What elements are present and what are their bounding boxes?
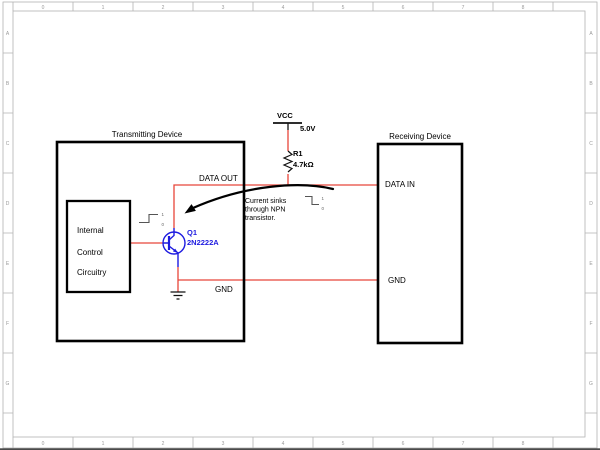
col-label: 1 <box>102 441 105 447</box>
col-label: 1 <box>102 5 105 11</box>
falling-edge-high-label: 1 <box>322 196 325 201</box>
col-label: 6 <box>402 5 405 11</box>
data-in-pin-label: DATA IN <box>385 180 415 189</box>
row-label: C <box>6 141 10 147</box>
col-label: 8 <box>522 5 525 11</box>
row-label: G <box>589 381 593 387</box>
schematic-canvas: 0 1 2 3 4 5 6 7 8 0 1 2 3 4 5 6 7 8 A B … <box>0 0 600 450</box>
col-label: 7 <box>462 5 465 11</box>
transistor-part-label: 2N2222A <box>187 238 219 247</box>
internal-control-line3: Circuitry <box>77 268 106 277</box>
rising-edge-high-label: 1 <box>162 212 165 217</box>
row-label: D <box>6 201 10 207</box>
row-label: B <box>6 81 10 87</box>
note-line3: transistor. <box>245 215 275 222</box>
row-label: F <box>589 321 592 327</box>
col-label: 8 <box>522 441 525 447</box>
resistor-value-label: 4.7kΩ <box>293 160 314 169</box>
sheet-left-ticks <box>3 53 13 413</box>
col-label: 4 <box>282 5 285 11</box>
col-label: 0 <box>42 441 45 447</box>
row-label: F <box>6 321 9 327</box>
schematic-page: 0 1 2 3 4 5 6 7 8 0 1 2 3 4 5 6 7 8 A B … <box>0 0 600 450</box>
vcc-voltage-label: 5.0V <box>300 124 315 133</box>
rising-edge-icon <box>139 215 158 223</box>
falling-edge-icon <box>305 197 319 205</box>
transistor-ref-label: Q1 <box>187 228 197 237</box>
sheet-outer-border <box>3 2 597 448</box>
sheet-inner-border <box>13 11 585 437</box>
note-line2: through NPN <box>245 207 285 214</box>
row-label: G <box>6 381 10 387</box>
col-label: 2 <box>162 441 165 447</box>
col-label: 0 <box>42 5 45 11</box>
row-label: B <box>589 81 593 87</box>
row-label: A <box>6 31 10 37</box>
col-label: 5 <box>342 5 345 11</box>
rx-gnd-pin-label: GND <box>388 276 406 285</box>
data-out-net-label: DATA OUT <box>199 174 238 183</box>
transistor-leads <box>163 228 178 267</box>
receiving-device-box <box>378 144 462 343</box>
col-label: 4 <box>282 441 285 447</box>
internal-control-line1: Internal <box>77 226 104 235</box>
sheet-right-ticks <box>585 53 597 413</box>
vcc-net-label: VCC <box>277 111 293 120</box>
internal-control-line2: Control <box>77 248 103 257</box>
row-label: E <box>6 261 10 267</box>
row-label: D <box>589 201 593 207</box>
col-label: 2 <box>162 5 165 11</box>
col-label: 6 <box>402 441 405 447</box>
annotation-arrow-head <box>185 204 196 213</box>
internal-control-box <box>67 201 130 292</box>
transmitting-device-title: Transmitting Device <box>112 130 183 139</box>
col-label: 3 <box>222 441 225 447</box>
row-label: E <box>589 261 593 267</box>
col-label: 5 <box>342 441 345 447</box>
row-label: C <box>589 141 593 147</box>
col-label: 7 <box>462 441 465 447</box>
note-line1: Current sinks <box>245 198 287 205</box>
resistor-symbol <box>284 151 292 172</box>
ground-symbol <box>171 292 186 299</box>
receiving-device-title: Receiving Device <box>389 132 451 141</box>
rising-edge-low-label: 0 <box>162 222 165 227</box>
falling-edge-low-label: 0 <box>322 206 325 211</box>
row-label: A <box>589 31 593 37</box>
col-label: 3 <box>222 5 225 11</box>
tx-gnd-net-label: GND <box>215 285 233 294</box>
resistor-ref-label: R1 <box>293 149 303 158</box>
